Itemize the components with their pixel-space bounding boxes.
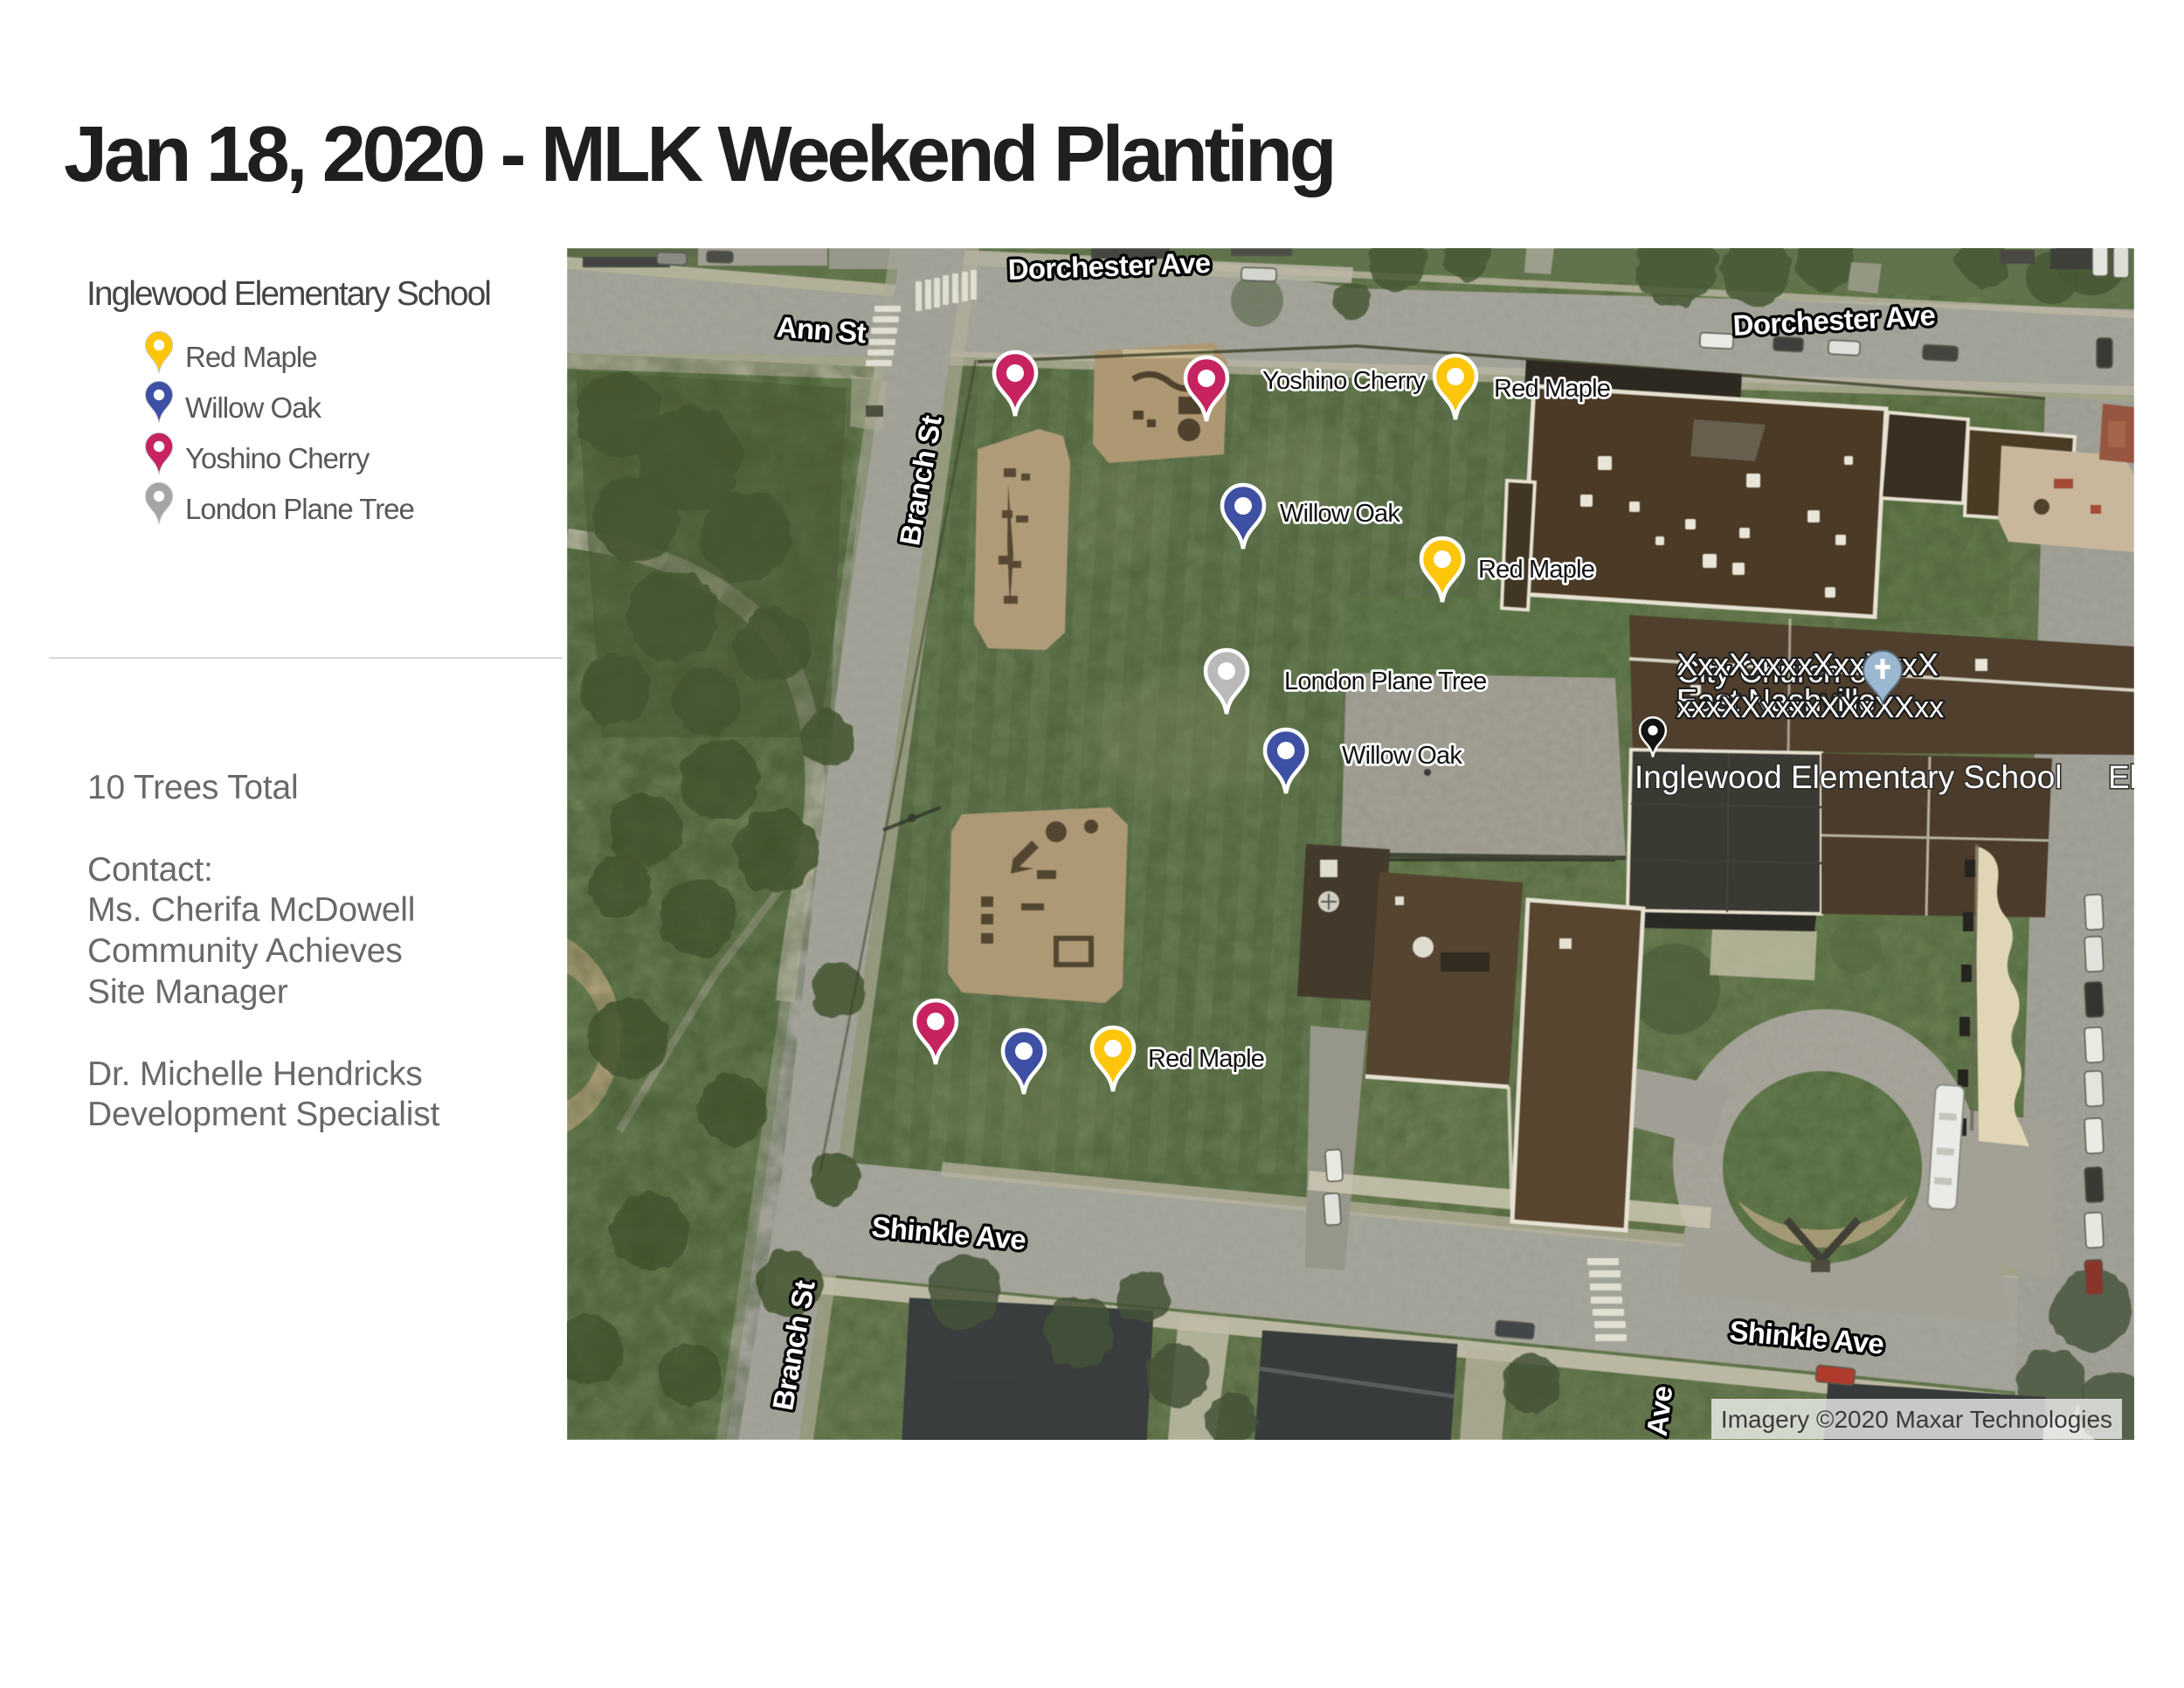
svg-text:Inglewood Elementary School: Inglewood Elementary School [1635,759,2063,795]
svg-text:Ave: Ave [1641,1384,1679,1438]
svg-text:London Plane Tree: London Plane Tree [1284,668,1486,695]
svg-text:Red Maple: Red Maple [1148,1045,1264,1073]
svg-text:Ann St: Ann St [776,310,867,349]
svg-text:Willow Oak: Willow Oak [1280,500,1400,528]
svg-text:xxxXXxxxxXXxXXxx: xxxXXxxxxXXxXXxx [1676,691,1944,724]
svg-text:Red Maple: Red Maple [1478,556,1594,584]
svg-text:Yoshino Cherry: Yoshino Cherry [1262,367,1426,395]
svg-text:Willow Oak: Willow Oak [1342,742,1462,770]
svg-text:Red Maple: Red Maple [1494,375,1610,403]
svg-text:El: El [2108,759,2134,795]
svg-text:Imagery ©2020 Maxar Technologi: Imagery ©2020 Maxar Technologies [1721,1406,2112,1433]
